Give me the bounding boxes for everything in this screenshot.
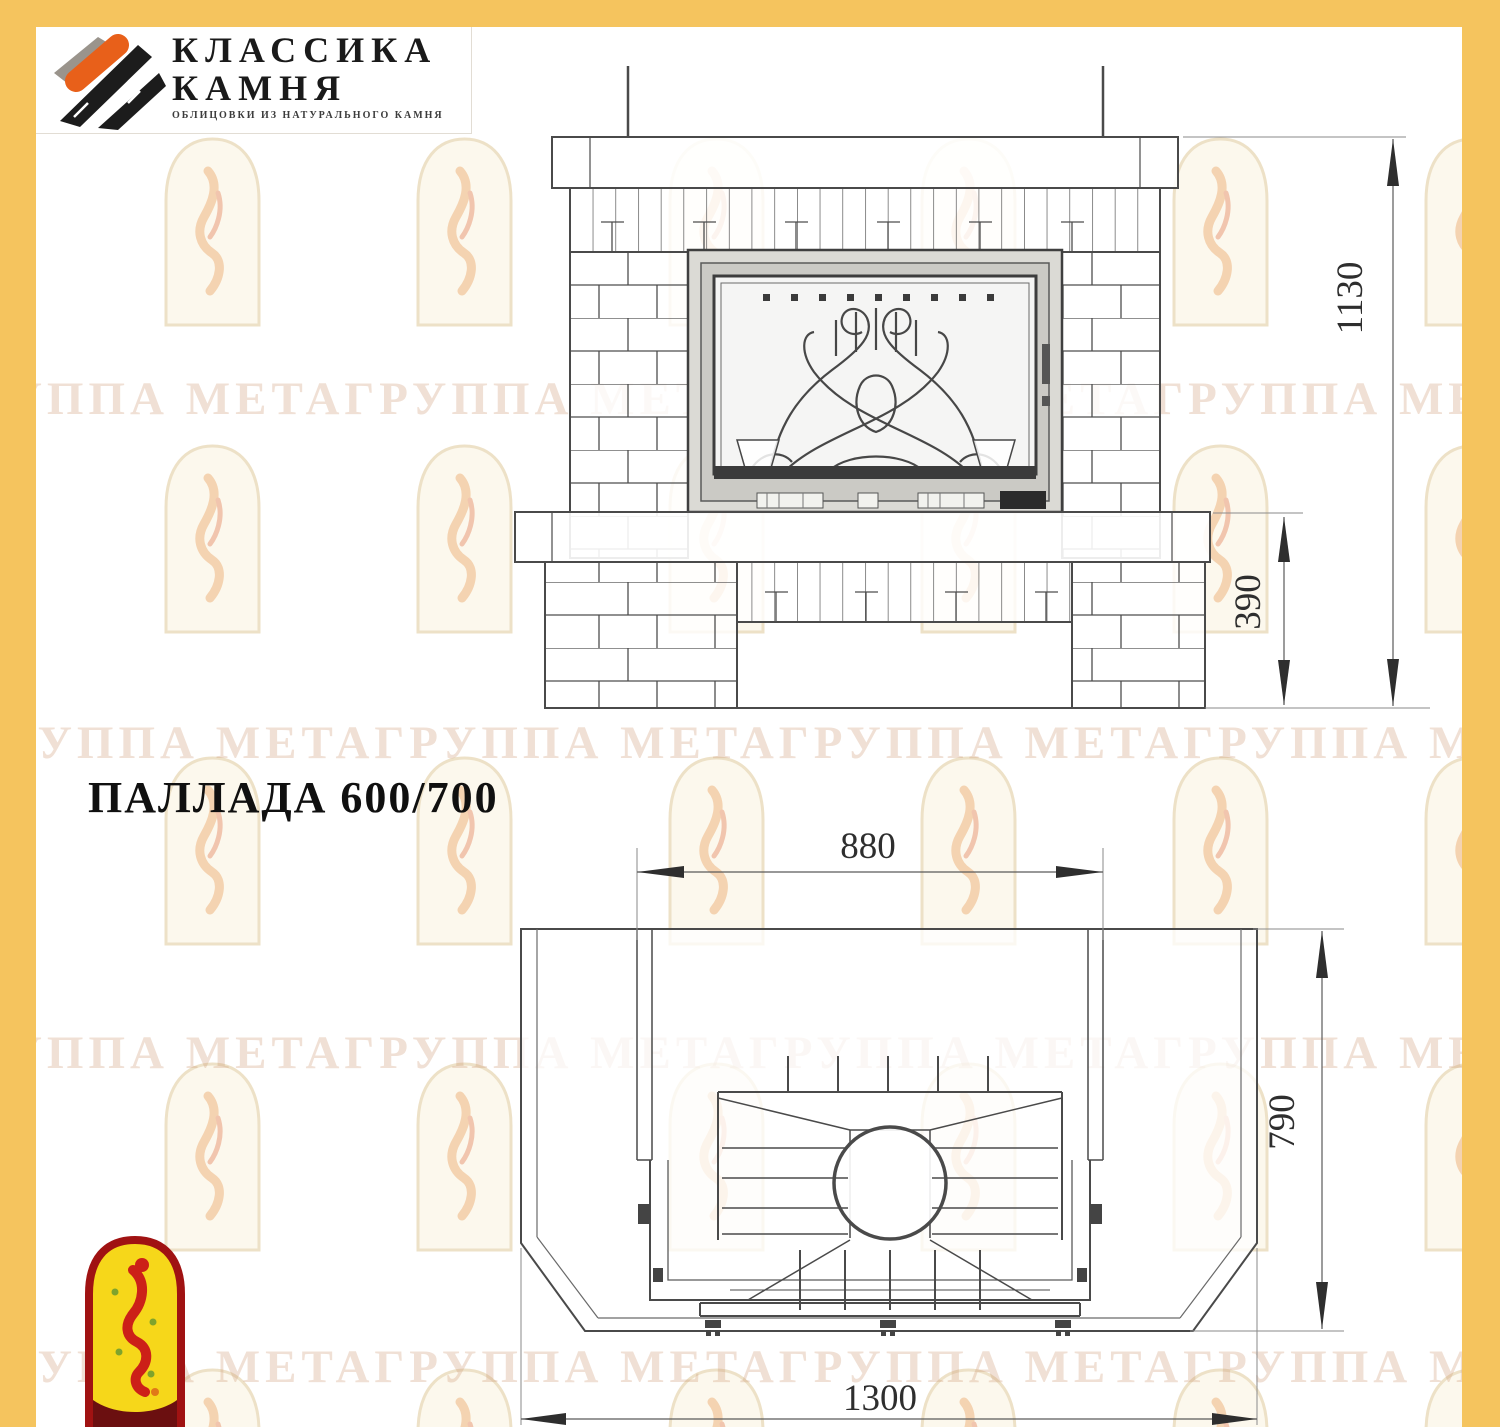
- flue-outlet-circle: [834, 1127, 946, 1239]
- page-border-top: [0, 0, 1500, 27]
- stone-logo-icon: [42, 29, 168, 131]
- door-handle: [1042, 344, 1050, 384]
- plan-view: 880 790 1300: [521, 826, 1344, 1425]
- logo-title-line1: КЛАССИКА: [172, 31, 444, 69]
- dim-depth-label: 790: [1262, 1094, 1303, 1150]
- top-brick-frieze: [570, 188, 1160, 252]
- dim-base-height-label: 390: [1228, 574, 1269, 630]
- wood-niche: [737, 622, 1072, 708]
- front-dimensions: 1130 390: [1183, 137, 1430, 708]
- dim-overall-width-label: 1300: [843, 1378, 917, 1419]
- dim-portal-width-label: 880: [840, 826, 896, 867]
- front-elevation-view: 1130 390: [515, 66, 1430, 708]
- chimney-lines: [628, 66, 1103, 137]
- scanned-fireplace-drawing-page: ГРУППА МЕТАГРУППА МЕТАГРУППА МЕТАГРУППА …: [0, 0, 1500, 1427]
- page-border-left: [0, 0, 36, 1427]
- base-brick-frieze: [737, 562, 1072, 622]
- hearth-shelf: [515, 512, 1210, 562]
- logo-subtitle: ОБЛИЦОВКИ ИЗ НАТУРАЛЬНОГО КАМНЯ: [172, 110, 444, 121]
- right-base-pedestal: [1072, 562, 1205, 708]
- page-border-right: [1462, 0, 1500, 1427]
- firebox-insert-front: [688, 250, 1062, 512]
- logo-title-line2: КАМНЯ: [172, 69, 444, 107]
- mantel-shelf: [552, 137, 1178, 188]
- left-base-pedestal: [545, 562, 737, 708]
- product-title: ПАЛЛАДА 600/700: [88, 772, 499, 823]
- technical-drawing: 1130 390: [0, 0, 1500, 1427]
- vent-holes: [763, 294, 994, 301]
- company-logo: КЛАССИКА КАМНЯ ОБЛИЦОВКИ ИЗ НАТУРАЛЬНОГО…: [33, 24, 472, 134]
- meta-firebird-logo: [85, 1232, 185, 1427]
- dim-total-height-label: 1130: [1330, 262, 1371, 335]
